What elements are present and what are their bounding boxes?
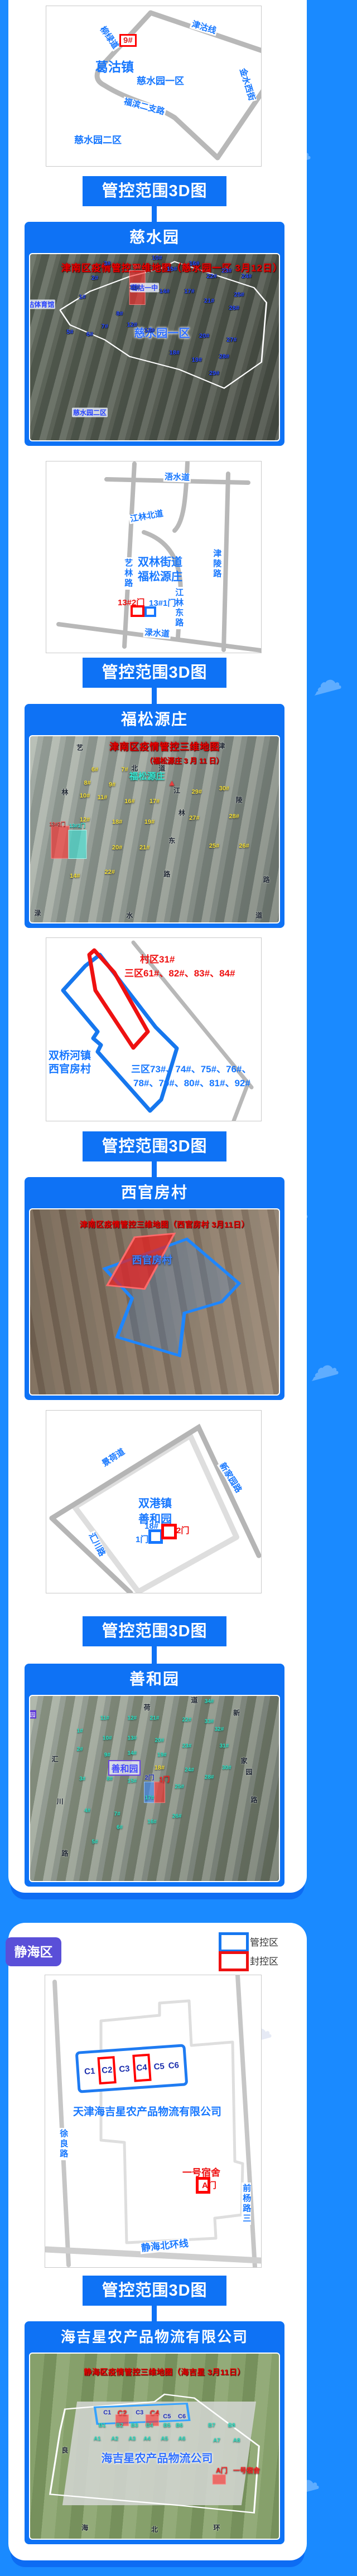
sat-label: 路: [250, 1795, 257, 1804]
sat-label: 津南区疫情管控三维地图（西官房村 3月11日）: [80, 1219, 249, 1230]
sat-label: B6: [176, 2423, 183, 2429]
sat-label: 水: [126, 910, 133, 920]
sat-label: 新: [233, 1708, 240, 1717]
sat-label: 25#: [175, 1783, 184, 1790]
sat-label: 3#: [79, 1776, 85, 1782]
sat-label: 林: [178, 808, 185, 817]
sat-label: 10#: [80, 793, 90, 799]
sat-label: 19#: [144, 819, 155, 825]
street-map-shanheyuan: 景荷道 新家园路 汇川路 双港镇 善和园 18# 1门 2门: [46, 1410, 262, 1593]
sat-label: 10#: [103, 1736, 112, 1742]
sat-label: 1#: [79, 294, 86, 300]
sat-label: 1#: [77, 1728, 83, 1734]
sat-label: 艺: [76, 743, 83, 752]
sat-label: 3#: [104, 260, 110, 267]
sat-label: 21#: [139, 844, 149, 851]
sat-label: 34#: [205, 1698, 214, 1704]
sat-label: 23#: [221, 268, 231, 274]
sat-label: 一号宿舍: [233, 2466, 260, 2475]
sat-label: 2#: [77, 1747, 83, 1753]
sat-label: 园: [245, 1767, 252, 1777]
panel-title: 西官房村: [25, 1177, 284, 1208]
sat-label: 川: [57, 1797, 64, 1806]
town-label: 葛沽镇: [95, 56, 134, 75]
sat-label: 6#: [91, 766, 98, 773]
road-label: 津陵路: [212, 548, 221, 580]
sat-label: 20#: [155, 1737, 165, 1743]
sat-label: B7: [208, 2423, 215, 2429]
legend-label-sealed: 封控区: [250, 1953, 278, 1967]
sat-label: A3: [128, 2436, 136, 2442]
sat-label: A5: [161, 2436, 168, 2442]
sat-image-fusongyuanzhuang: ▲ 津南区疫情管控三维地图（福松源庄 3 月 11 日）福松源庄13#2门13#…: [29, 735, 280, 924]
sat-label: 慈水园二区: [72, 407, 108, 417]
sat-panel-haijixing: 海吉星农产品物流有限公司 ▲ 静海区疫情管控三维地图（海吉星 3月11日）C1C…: [25, 2321, 284, 2544]
c-building-label: C1: [84, 2067, 96, 2077]
sat-label: 21#: [204, 298, 214, 304]
c-building-label: C5: [153, 2062, 165, 2072]
sat-label: 15#: [167, 266, 177, 273]
sat-panel-shanheyuan: 善和园 园善和园18#2门1门1#2#3#4#5#6#7#8#9#10#11#1…: [25, 1664, 284, 1887]
sat-label: 14#: [70, 873, 80, 879]
sat-label: A2: [111, 2436, 118, 2442]
sat-label: 7#: [114, 1811, 120, 1817]
sat-label: 园: [29, 1710, 36, 1719]
sat-label: C5: [163, 2413, 171, 2420]
street-name: 双林街道: [138, 553, 182, 569]
sat-label: 路: [263, 875, 270, 884]
town-label: 双桥河镇: [49, 1047, 91, 1062]
connector: [152, 206, 157, 222]
sat-label: 道: [158, 763, 165, 772]
sat-image-shanheyuan: 园善和园18#2门1门1#2#3#4#5#6#7#8#9#10#11#12#13…: [29, 1695, 280, 1882]
street-map-fusongyuanzhuang: 浯水道 艺林路 津陵路 江林东路 江林北道 渌水道 双林街道 福松源庄 13#2…: [46, 461, 262, 653]
highlight-overlay: [68, 830, 86, 859]
sat-label: 21#: [150, 1715, 160, 1721]
highlight-overlay: [154, 1781, 165, 1803]
sat-label: 家: [241, 1756, 248, 1766]
sat-label: 海吉星农产品物流公司: [101, 2449, 213, 2465]
sat-label: 29#: [192, 789, 202, 795]
sat-label: 29#: [209, 370, 219, 377]
gate-label-red: A门: [202, 2179, 216, 2191]
section-banner: 管控范围3D图: [83, 1131, 226, 1161]
highlight-overlay: [51, 826, 69, 859]
panel-title: 善和园: [25, 1664, 284, 1695]
village-label: 西官房村: [49, 1061, 91, 1076]
sat-label: A7: [213, 2438, 220, 2444]
sat-label: 6#: [86, 331, 93, 338]
panel-title: 福松源庄: [25, 704, 284, 735]
sat-label: 19#: [192, 357, 202, 363]
legend-swatch-sealed: [219, 1951, 249, 1971]
connector: [152, 2306, 157, 2321]
road-label: 艺林路: [123, 557, 133, 590]
sat-label: 2#: [91, 275, 98, 281]
sat-label: 18#: [112, 819, 122, 825]
sat-label: C6: [178, 2413, 186, 2420]
sat-label: 28#: [219, 353, 229, 360]
connector: [152, 1161, 157, 1177]
sat-label: 15#: [128, 1778, 137, 1784]
sat-label: 28#: [205, 1775, 214, 1781]
sat-label: B8: [228, 2423, 235, 2429]
sat-label: 道: [191, 1695, 197, 1704]
sat-label: 静海区疫情管控三维地图（海吉星 3月11日）: [84, 2366, 245, 2378]
sat-label: 7#: [121, 766, 128, 773]
c-building-label: C6: [167, 2060, 180, 2070]
sat-image-haijixing: ▲ 静海区疫情管控三维地图（海吉星 3月11日）C1C2C3C4C5C6B1B2…: [29, 2353, 280, 2540]
sat-label: 33#: [205, 1719, 214, 1725]
sat-label: 16#: [189, 260, 199, 267]
sat-label: 9#: [109, 781, 115, 788]
sat-label: B3: [131, 2423, 138, 2429]
panel-title: 海吉星农产品物流有限公司: [25, 2321, 284, 2353]
sat-label: A8: [233, 2438, 240, 2444]
building-marker-9: 9#: [119, 34, 137, 47]
sat-label: 30#: [222, 1765, 231, 1771]
sat-label: 环: [213, 2523, 220, 2533]
c-buildings-block: C1 C2 C3 C4 C5 C6: [75, 2044, 189, 2093]
sat-label: 2门: [145, 1773, 155, 1782]
street-map-cishuiyuan: 柳绿道 津沽线 金水西街 福滨二支路 9# 葛沽镇 慈水园一区 慈水园二区: [46, 6, 262, 167]
sat-label: 22#: [206, 273, 216, 280]
gate-box-red: [161, 1524, 177, 1539]
sat-label: 20#: [199, 333, 209, 339]
highlight-overlay: [213, 2474, 226, 2485]
sat-label: C3: [136, 2409, 143, 2416]
road-label: 渌水道: [143, 628, 171, 639]
sat-label: 1门: [159, 1775, 170, 1784]
sat-label: 17#: [145, 1795, 155, 1801]
zone-overlays: [30, 1209, 279, 1394]
sat-label: 10#: [152, 255, 162, 261]
sat-label: 11#: [100, 1715, 109, 1721]
section-banner: 管控范围3D图: [83, 658, 226, 688]
sat-label: 西官房村: [132, 1252, 172, 1267]
control-boundary: [30, 254, 279, 440]
estate-name: 福松源庄: [138, 567, 182, 584]
sat-label: 26#: [229, 305, 239, 312]
sealed-zone-text: 村区31#: [140, 951, 175, 965]
sat-label: 24#: [242, 273, 252, 280]
control-zone-text: 78#、79#、80#、81#、92#: [133, 1075, 250, 1089]
sat-label: 8#: [116, 310, 123, 317]
sat-label: 18#: [155, 1765, 165, 1771]
sat-label: 11#: [97, 794, 107, 801]
sat-label: 汇: [52, 1754, 59, 1763]
sat-label: 12#: [80, 816, 90, 823]
sat-label: 北: [131, 763, 138, 772]
sat-label: A6: [178, 2436, 186, 2442]
sat-label: 18#: [169, 349, 179, 356]
sat-label: 13#2门: [50, 820, 66, 827]
sat-label: 7#: [102, 323, 108, 330]
sat-label: 13#: [144, 327, 155, 334]
sat-label: 25#: [209, 843, 219, 849]
sat-label: 路: [61, 1849, 68, 1858]
gate-box-red: [131, 605, 144, 617]
road-label: 前杨路三: [242, 2183, 251, 2225]
legend-swatch-control: [219, 1932, 249, 1952]
connector: [152, 1646, 157, 1664]
company-name: 天津海吉星农产品物流有限公司: [73, 2103, 221, 2118]
c-building-label-sealed: C4: [132, 2054, 152, 2082]
sat-label: 道: [255, 910, 262, 920]
sat-label: 津: [218, 741, 225, 750]
gate-label-blue: 1门: [136, 1533, 148, 1545]
c-building-label: C3: [118, 2064, 131, 2074]
sat-label: 28#: [229, 813, 239, 820]
sat-label: 20#: [112, 844, 122, 851]
sat-label: 东: [168, 836, 175, 845]
sat-label: 善和园: [108, 1760, 141, 1776]
sat-label: 30#: [219, 785, 229, 792]
sat-label: 6#: [117, 1824, 123, 1830]
sat-label: 4#: [84, 1807, 90, 1814]
sat-label: 葛沽体育馆: [29, 300, 55, 309]
area-label: 慈水园一区: [137, 73, 184, 87]
panel-title: 慈水园: [25, 222, 284, 253]
district-badge: 静海区: [6, 1937, 61, 1966]
sat-label: B4: [146, 2423, 153, 2429]
section-banner: 管控范围3D图: [83, 2276, 226, 2306]
sat-panel-fusongyuanzhuang: 福松源庄 ▲ 津南区疫情管控三维地图（福松源庄 3 月 11 日）福松源庄13#…: [25, 704, 284, 928]
sat-label: B1: [99, 2423, 106, 2429]
connector: [152, 688, 157, 704]
sat-label: 19#: [157, 1752, 167, 1758]
sat-label: 11#: [129, 284, 139, 291]
sat-label: 12#: [127, 322, 137, 328]
sat-label: B5: [163, 2423, 171, 2429]
street-map-xiguanfangcun: 村区31# 三区61#、82#、83#、84# 双桥河镇 西官房村 三区73#、…: [46, 937, 262, 1121]
sat-label: 26#: [172, 1813, 182, 1819]
sat-label: 8#: [84, 780, 90, 786]
sat-label: 32#: [215, 1726, 224, 1732]
site-boundary: [101, 2001, 243, 2243]
roads-graphic: [45, 1975, 261, 2267]
sat-label: 荷: [144, 1702, 151, 1712]
sat-label: 31#: [220, 1743, 229, 1749]
c-building-label-sealed: C2: [98, 2056, 117, 2084]
sat-label: 14#: [160, 288, 170, 295]
sat-label: 5#: [66, 329, 73, 336]
road-label: 浯水道: [163, 472, 191, 483]
sat-label: 26#: [239, 843, 249, 849]
watermark-cloud-icon: ☁: [302, 1345, 342, 1389]
sat-label: 海: [81, 2523, 88, 2533]
sat-label: 16#: [124, 798, 134, 805]
sat-label: 27#: [189, 815, 199, 822]
sat-label: 12#: [128, 1715, 137, 1721]
sat-label: 9#: [133, 263, 141, 271]
sat-panel-cishuiyuan: 慈水园 ▲ 津南区疫情管控三维地图（慈水园一区 3月12日）9#葛沽一中葛沽体育…: [25, 222, 284, 446]
sat-panel-xiguanfangcun: 西官房村 ▲ 津南区疫情管控三维地图（西官房村 3月11日）西官房村: [25, 1177, 284, 1400]
sat-label: 17#: [184, 288, 194, 295]
street-map-haijixing: C1 C2 C3 C4 C5 C6 天津海吉星农产品物流有限公司 徐良路 前杨路…: [45, 1975, 262, 2268]
sat-label: 14#: [128, 1750, 137, 1756]
gate-box-blue: [144, 606, 156, 617]
sat-label: 北: [151, 2525, 158, 2534]
sat-label: 16#: [147, 1819, 157, 1825]
road-label: 徐良路: [59, 2128, 68, 2160]
section-banner: 管控范围3D图: [83, 176, 226, 206]
sat-label: 22#: [105, 869, 115, 876]
sat-label: B2: [116, 2423, 123, 2429]
sat-label: 路: [163, 869, 170, 879]
sat-label: 27#: [226, 337, 237, 343]
sat-label: 25#: [234, 291, 244, 298]
sat-image-cishuiyuan: ▲ 津南区疫情管控三维地图（慈水园一区 3月12日）9#葛沽一中葛沽体育馆慈水园…: [29, 253, 280, 441]
sat-label: 林: [61, 788, 68, 797]
sat-label: 良: [61, 2445, 68, 2455]
sat-label: 24#: [185, 1767, 194, 1773]
sat-label: A门: [216, 2466, 228, 2475]
sat-label: 津南区疫情管控三维地图: [109, 738, 220, 752]
watermark-cloud-icon: ☁: [305, 660, 345, 703]
sat-label: 13#: [128, 1736, 137, 1742]
area-label: 慈水园二区: [74, 132, 122, 146]
sat-label: 江: [173, 785, 180, 795]
sat-label: 陵: [236, 795, 243, 804]
sat-label: 17#: [149, 798, 160, 805]
sat-label: A4: [143, 2436, 151, 2442]
sat-label: 5#: [91, 1839, 98, 1845]
sat-label: （福松源庄 3 月 11 日）: [146, 755, 223, 766]
town-label: 双港镇: [138, 1494, 172, 1510]
sat-image-xiguanfangcun: ▲ 津南区疫情管控三维地图（西官房村 3月11日）西官房村: [29, 1208, 280, 1396]
sat-label: 渌: [34, 908, 41, 918]
sealed-zone-text: 三区61#、82#、83#、84#: [124, 965, 235, 979]
sat-label: 23#: [182, 1743, 192, 1749]
sat-label: 慈水园一区: [134, 324, 190, 341]
sat-label: 8#: [107, 1776, 113, 1782]
covid-control-map-infographic: ☁ ☁ ☁ ☁ ☁ ☁ ☁ 津云 津云 柳绿道 津沽线 金水西街 福滨二支路 9…: [0, 0, 357, 2576]
sat-label: C1: [103, 2409, 111, 2416]
sat-label: 22#: [182, 1717, 192, 1723]
gate-label-red: 2门: [176, 1524, 189, 1536]
sat-label: A1: [94, 2436, 101, 2442]
section-banner: 管控范围3D图: [83, 1616, 226, 1646]
control-zone-text: 三区73#、74#、75#、76#、: [131, 1061, 251, 1075]
legend-label-control: 管控区: [250, 1935, 278, 1948]
sat-label: 9#: [104, 1752, 110, 1758]
